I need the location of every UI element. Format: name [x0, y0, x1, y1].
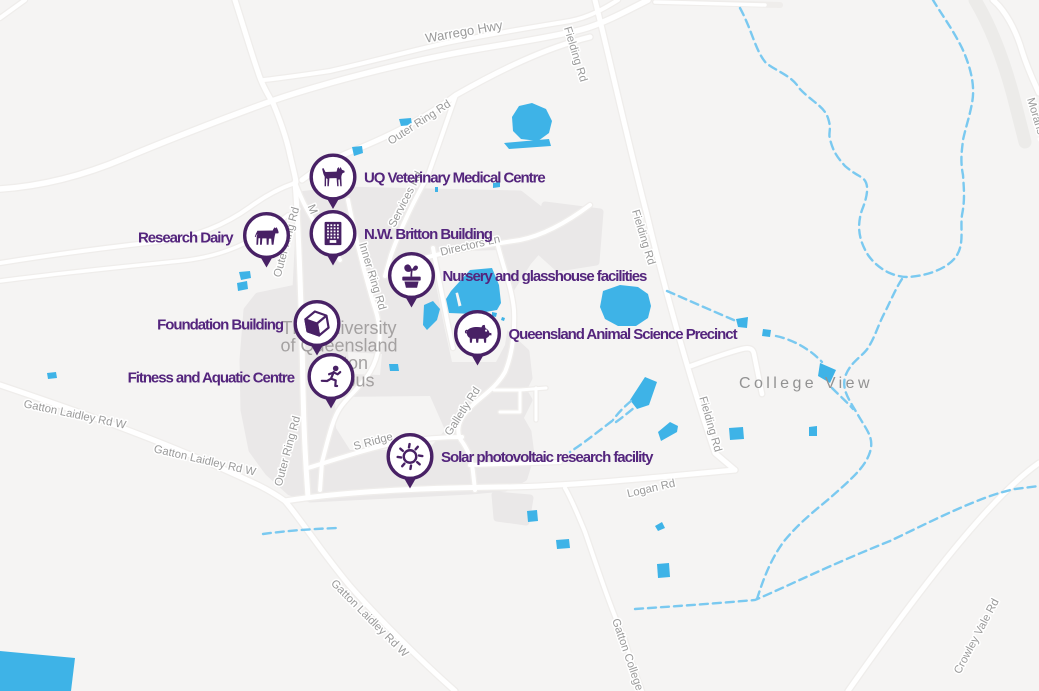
svg-text:N.W. Britton Building: N.W. Britton Building	[364, 226, 493, 243]
svg-text:Queensland Animal Science Prec: Queensland Animal Science Precinct	[509, 326, 738, 343]
svg-text:College View: College View	[739, 375, 873, 392]
svg-text:Research Dairy: Research Dairy	[138, 230, 234, 247]
svg-text:Solar photovoltaic research fa: Solar photovoltaic research facility	[441, 449, 654, 466]
svg-text:UQ Veterinary Medical Centre: UQ Veterinary Medical Centre	[364, 170, 545, 187]
svg-text:Nursery and glasshouse facilit: Nursery and glasshouse facilities	[443, 268, 647, 285]
svg-text:Fitness and Aquatic Centre: Fitness and Aquatic Centre	[128, 370, 295, 387]
svg-text:Foundation Building: Foundation Building	[157, 317, 284, 334]
